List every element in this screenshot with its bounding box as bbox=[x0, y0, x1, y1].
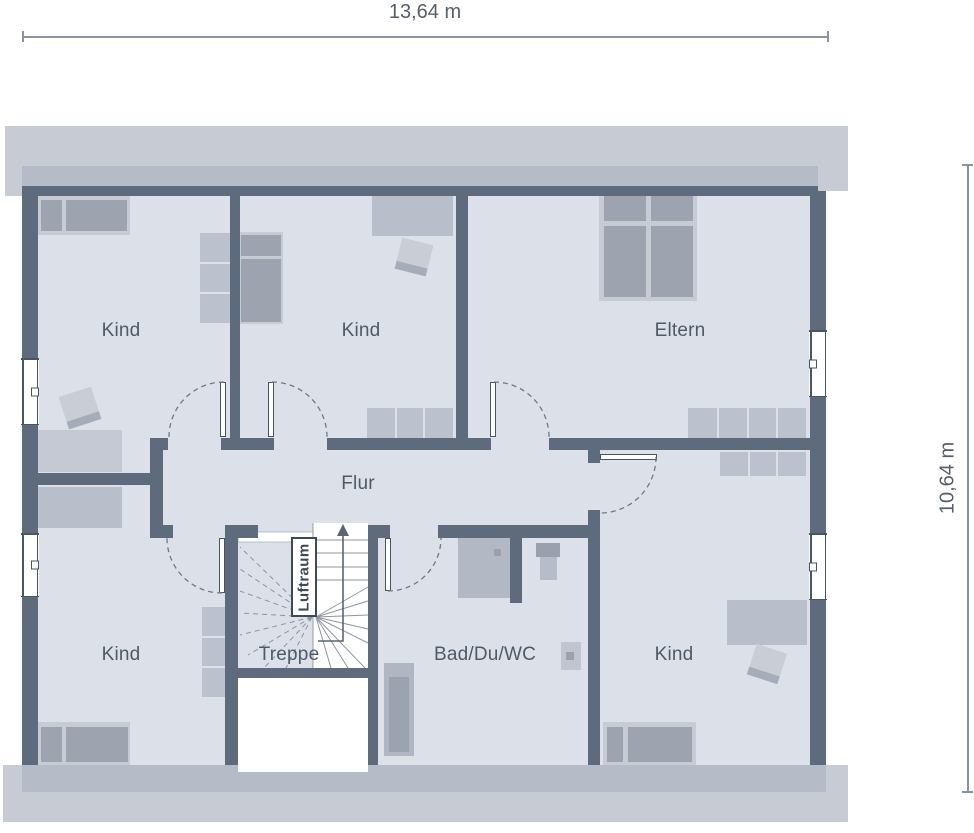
wall-divider-kind-kind bbox=[230, 196, 240, 438]
floor-plan-canvas: Luftraum Kind Kind Eltern Flur Treppe Ki… bbox=[0, 0, 974, 833]
bathroom-cabinet-inner bbox=[389, 677, 409, 752]
wall-divider-kind-eltern bbox=[456, 196, 468, 450]
window-right-bottom bbox=[809, 533, 827, 600]
window-frame-line bbox=[21, 358, 39, 360]
dresser-divider bbox=[748, 452, 750, 476]
dresser-bottom-right bbox=[720, 452, 806, 476]
window-frame-line bbox=[809, 599, 827, 601]
roof-band-bottom-left-cap bbox=[3, 765, 22, 792]
dresser-divider bbox=[776, 452, 778, 476]
dimension-tick bbox=[22, 31, 24, 42]
wardrobe-bottom-section bbox=[241, 259, 281, 322]
dimension-tick bbox=[962, 791, 973, 793]
wall-eltern-south bbox=[549, 438, 810, 450]
door-leaf-kind-top-middle bbox=[268, 382, 274, 437]
washbasin-tap bbox=[566, 652, 574, 660]
luftraum-label: Luftraum bbox=[296, 543, 313, 611]
room-label-eltern: Eltern bbox=[655, 320, 706, 342]
wall-bad-north bbox=[438, 525, 590, 538]
shelf-top-left bbox=[200, 233, 230, 323]
room-label-kind-bottom-right: Kind bbox=[655, 644, 694, 666]
wall-flur-south bbox=[150, 525, 173, 538]
bed-mattress-top-left bbox=[66, 200, 127, 231]
bed-pillow-top-left bbox=[41, 200, 62, 231]
double-bed-mattress-right bbox=[651, 226, 693, 297]
wall-stairwell-west bbox=[225, 525, 238, 765]
window-handle bbox=[31, 561, 39, 570]
wall-shower-stub bbox=[510, 538, 522, 603]
dresser-divider bbox=[747, 408, 749, 438]
dresser-divider bbox=[717, 408, 719, 438]
desk-bottom-left bbox=[38, 487, 122, 528]
toilet-cistern bbox=[536, 543, 560, 557]
shelf-divider bbox=[200, 292, 230, 294]
dimension-line-top bbox=[22, 36, 828, 38]
window-handle bbox=[809, 562, 817, 571]
roof-band-bottom-light bbox=[3, 792, 848, 822]
roof-band-top-right-cap bbox=[818, 126, 848, 191]
room-label-kind-top-left: Kind bbox=[102, 320, 141, 342]
wardrobe-top-middle bbox=[372, 193, 453, 236]
window-frame-line bbox=[809, 396, 827, 398]
luftraum-tag: Luftraum bbox=[291, 537, 317, 617]
dimension-depth-label: 10,64 m bbox=[937, 442, 960, 514]
double-bed-pillow-right bbox=[651, 196, 693, 221]
shower-drain bbox=[494, 549, 501, 556]
wall-stairwell-south bbox=[225, 668, 378, 678]
room-label-treppe: Treppe bbox=[259, 644, 320, 666]
wall-kind-br-west bbox=[588, 510, 600, 765]
toilet-bowl bbox=[540, 557, 557, 580]
window-handle bbox=[31, 387, 39, 396]
bed-pillow-bottom-left bbox=[41, 727, 62, 762]
roof-band-bottom-right-cap bbox=[826, 765, 848, 792]
room-label-kind-top-middle: Kind bbox=[342, 320, 381, 342]
desk-bottom-right bbox=[727, 600, 807, 645]
wall-flur-north bbox=[163, 438, 168, 450]
window-left-bottom bbox=[21, 533, 39, 597]
door-leaf-kind-bottom-left bbox=[219, 538, 225, 593]
wall-flur-north bbox=[327, 438, 456, 450]
dimension-line-right bbox=[967, 164, 969, 792]
roof-band-top-dark bbox=[22, 166, 818, 186]
window-frame-line bbox=[809, 533, 827, 535]
dimension-tick bbox=[962, 164, 973, 166]
wall-kind-br-west-stub bbox=[588, 450, 600, 463]
exterior-wall-right bbox=[810, 191, 826, 765]
bed-mattress-bottom-right bbox=[628, 727, 692, 762]
window-frame-line bbox=[21, 596, 39, 598]
room-label-flur: Flur bbox=[341, 473, 375, 495]
roof-band-top-light bbox=[5, 126, 848, 166]
door-leaf-bad bbox=[385, 538, 391, 591]
exterior-wall-left bbox=[22, 188, 38, 765]
room-label-kind-bottom-left: Kind bbox=[102, 644, 141, 666]
wall-eltern-south bbox=[468, 438, 491, 450]
door-leaf-kind-top-left bbox=[220, 382, 226, 437]
dimension-width-label: 13,64 m bbox=[389, 1, 461, 24]
window-frame-line bbox=[825, 533, 827, 600]
stair-flight-area bbox=[313, 523, 368, 668]
luftraum-void bbox=[238, 678, 368, 772]
exterior-wall-top bbox=[22, 186, 818, 196]
wall-divider-left-rooms bbox=[38, 473, 150, 485]
wall-stairwell-east bbox=[368, 525, 378, 765]
roof-band-top-left-cap bbox=[5, 166, 22, 196]
desk-top-left bbox=[38, 430, 122, 472]
window-handle bbox=[809, 359, 817, 368]
wall-flur-north bbox=[221, 438, 274, 450]
dresser-divider bbox=[395, 408, 397, 438]
dresser-eltern bbox=[688, 408, 806, 438]
window-frame-line bbox=[22, 358, 24, 425]
window-frame-line bbox=[21, 533, 39, 535]
dresser-divider bbox=[423, 408, 425, 438]
dresser-top-middle bbox=[367, 408, 453, 438]
roof-band-bottom-dark bbox=[22, 765, 826, 792]
bed-mattress-bottom-left bbox=[66, 727, 128, 762]
wall-flur-west-end bbox=[150, 438, 163, 538]
dresser-divider bbox=[776, 408, 778, 438]
wardrobe-top-section bbox=[241, 235, 281, 256]
window-frame-line bbox=[22, 533, 24, 597]
shelf-divider bbox=[200, 262, 230, 264]
window-left-top bbox=[21, 358, 39, 425]
bed-pillow-bottom-right bbox=[607, 727, 623, 762]
window-frame-line bbox=[809, 330, 827, 332]
dimension-tick bbox=[827, 31, 829, 42]
window-right-top bbox=[809, 330, 827, 397]
shower bbox=[458, 538, 510, 598]
double-bed-pillow-left bbox=[604, 196, 646, 221]
door-leaf-kind-bottom-right bbox=[600, 454, 657, 460]
room-label-bad: Bad/Du/WC bbox=[434, 644, 536, 666]
window-frame-line bbox=[825, 330, 827, 397]
window-frame-line bbox=[21, 424, 39, 426]
door-leaf-eltern bbox=[490, 382, 496, 437]
double-bed-mattress-left bbox=[604, 226, 646, 297]
